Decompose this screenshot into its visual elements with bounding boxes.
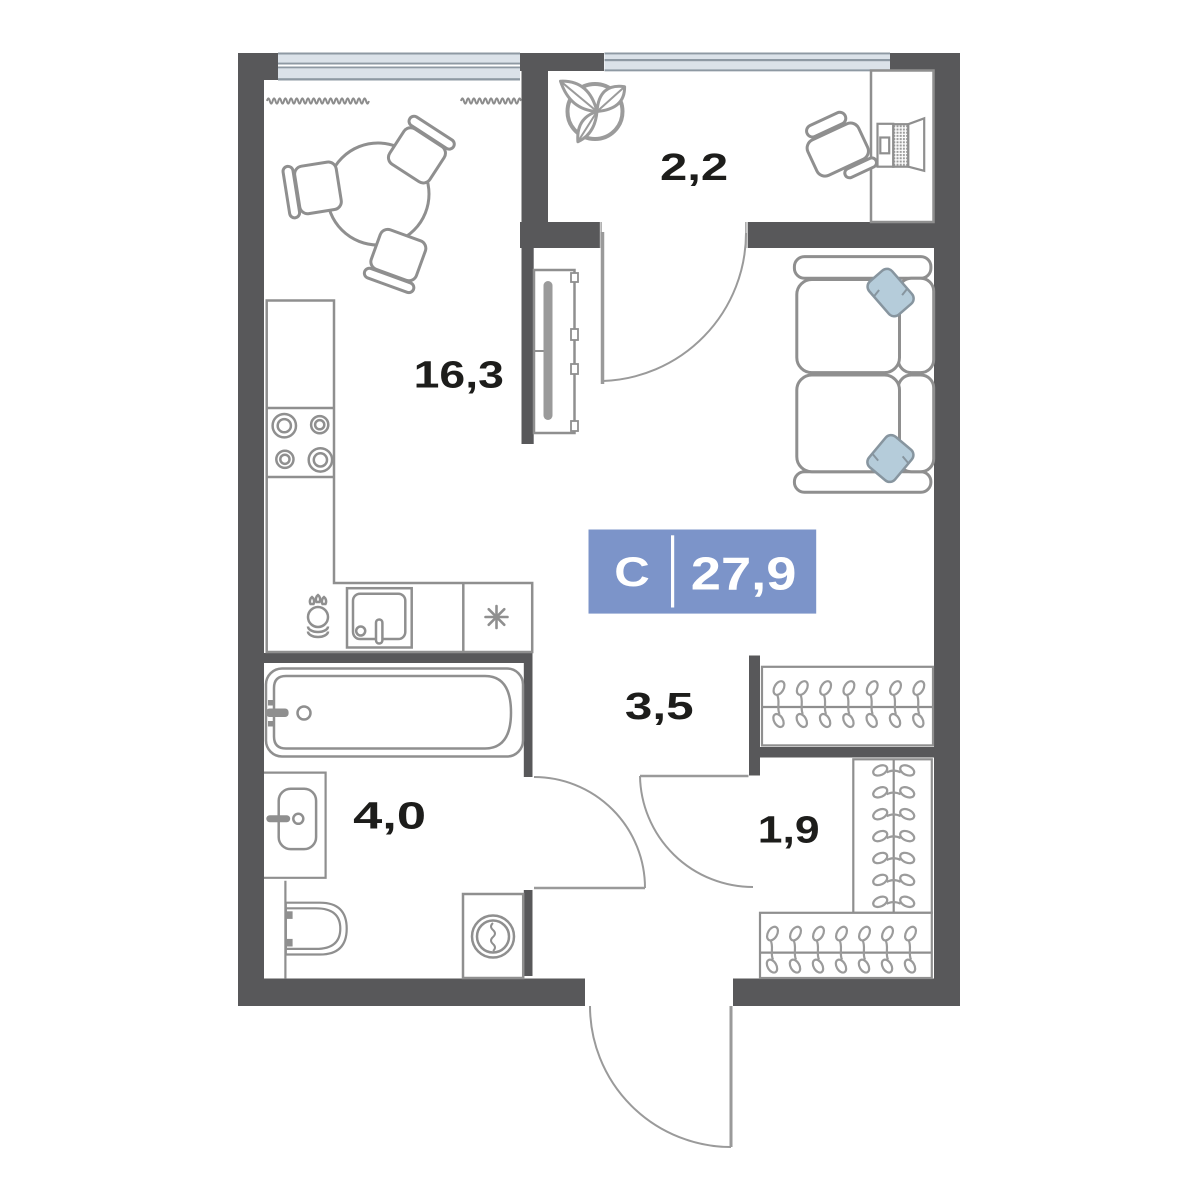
svg-text:С: С	[614, 548, 649, 595]
svg-text:4,0: 4,0	[353, 794, 426, 836]
svg-text:27,9: 27,9	[691, 547, 797, 599]
svg-text:2,2: 2,2	[660, 146, 728, 188]
svg-text:16,3: 16,3	[414, 353, 504, 395]
svg-text:1,9: 1,9	[758, 809, 820, 851]
svg-text:3,5: 3,5	[625, 685, 694, 727]
